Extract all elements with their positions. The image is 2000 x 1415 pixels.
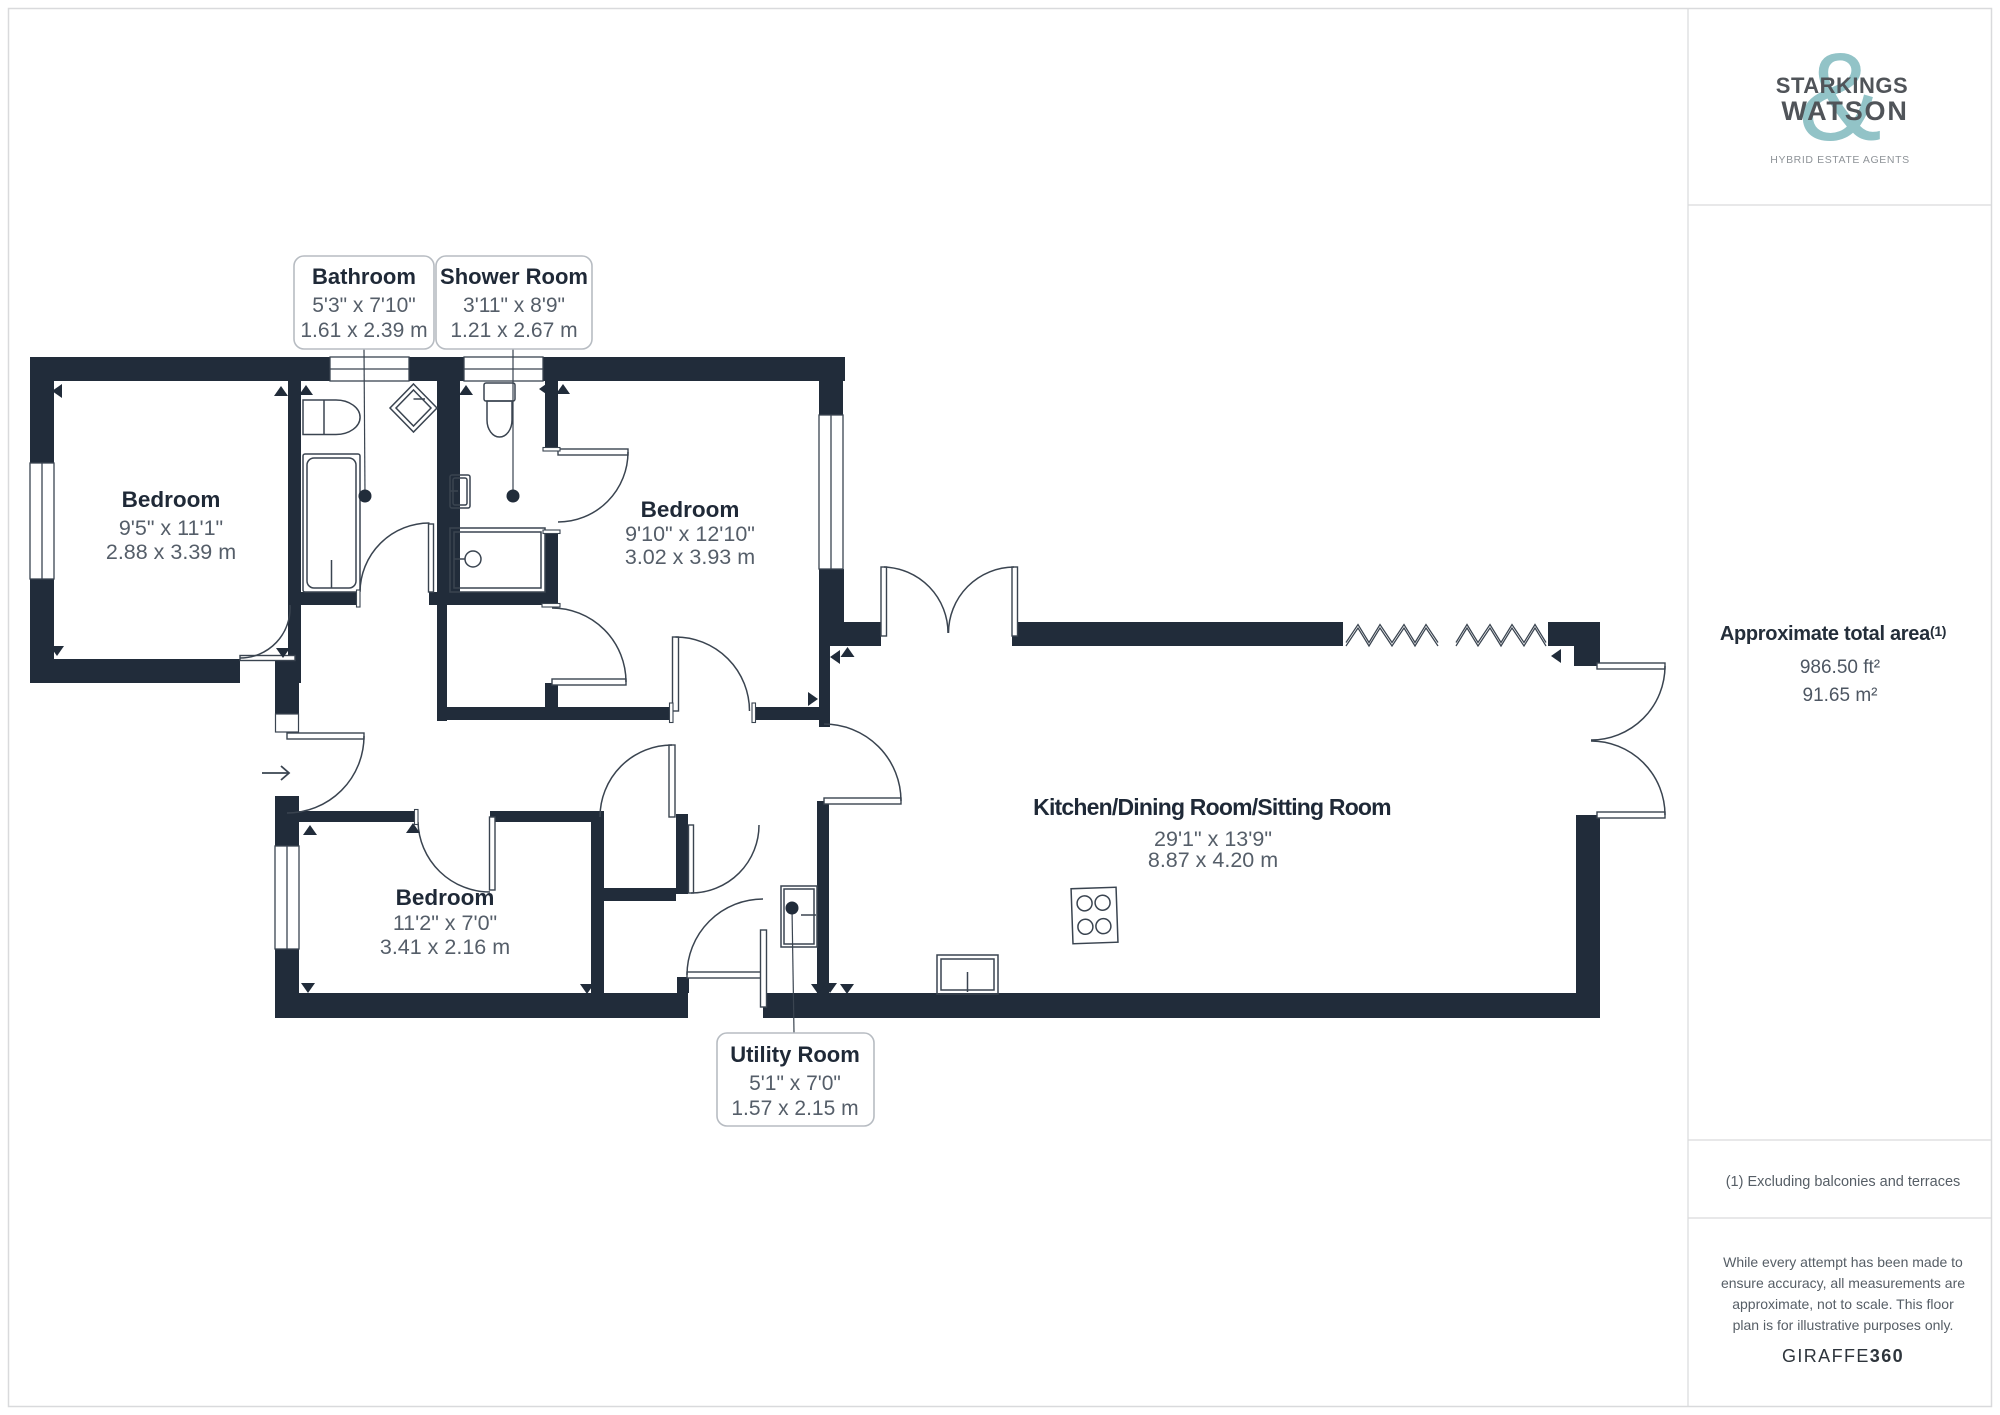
svg-text:GIRAFFE360: GIRAFFE360 <box>1782 1346 1904 1366</box>
svg-text:1.57 x 2.15 m: 1.57 x 2.15 m <box>731 1097 858 1120</box>
svg-text:1.21 x 2.67 m: 1.21 x 2.67 m <box>450 319 577 342</box>
svg-text:91.65 m²: 91.65 m² <box>1803 685 1878 706</box>
svg-text:3'11" x 8'9": 3'11" x 8'9" <box>463 294 565 317</box>
svg-text:1.61 x 2.39 m: 1.61 x 2.39 m <box>300 319 427 342</box>
svg-text:plan is for illustrative purpo: plan is for illustrative purposes only. <box>1733 1317 1954 1333</box>
svg-text:Bedroom: Bedroom <box>641 497 740 522</box>
svg-text:3.02 x 3.93 m: 3.02 x 3.93 m <box>625 545 755 569</box>
svg-text:(1) Excluding balconies and te: (1) Excluding balconies and terraces <box>1726 1174 1961 1190</box>
svg-text:Bedroom: Bedroom <box>396 885 495 910</box>
svg-text:WATSON: WATSON <box>1781 96 1908 126</box>
svg-text:While every attempt has been m: While every attempt has been made to <box>1723 1254 1963 1270</box>
svg-text:5'1" x 7'0": 5'1" x 7'0" <box>749 1072 841 1095</box>
svg-text:approximate, not to scale. Thi: approximate, not to scale. This floor <box>1732 1296 1954 1312</box>
svg-text:Bathroom: Bathroom <box>312 264 416 289</box>
svg-text:Kitchen/Dining Room/Sitting Ro: Kitchen/Dining Room/Sitting Room <box>1033 794 1391 820</box>
svg-text:Bedroom: Bedroom <box>122 487 221 512</box>
svg-text:9'5" x 11'1": 9'5" x 11'1" <box>119 516 223 540</box>
svg-text:5'3" x 7'10": 5'3" x 7'10" <box>312 294 416 317</box>
svg-text:2.88 x 3.39 m: 2.88 x 3.39 m <box>106 540 236 564</box>
svg-text:STARKINGS: STARKINGS <box>1776 73 1908 98</box>
svg-text:Utility Room: Utility Room <box>730 1042 860 1067</box>
svg-text:HYBRID ESTATE AGENTS: HYBRID ESTATE AGENTS <box>1770 154 1909 166</box>
svg-text:3.41 x 2.16 m: 3.41 x 2.16 m <box>380 935 510 959</box>
svg-text:9'10" x 12'10": 9'10" x 12'10" <box>625 522 755 546</box>
svg-text:11'2" x 7'0": 11'2" x 7'0" <box>393 911 497 935</box>
svg-text:Shower Room: Shower Room <box>440 264 588 289</box>
svg-text:8.87 x 4.20 m: 8.87 x 4.20 m <box>1148 848 1278 872</box>
svg-text:986.50 ft²: 986.50 ft² <box>1800 657 1880 678</box>
svg-text:ensure accuracy, all measureme: ensure accuracy, all measurements are <box>1721 1275 1965 1291</box>
svg-text:Approximate total area(1): Approximate total area(1) <box>1720 623 1946 645</box>
